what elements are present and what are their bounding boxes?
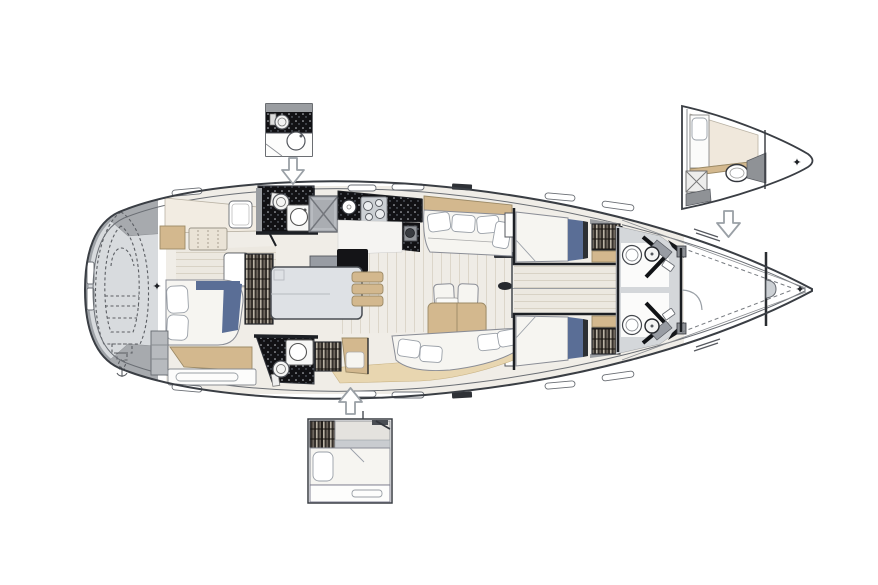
inset-head-option: [266, 104, 312, 184]
pillow: [313, 452, 333, 481]
berth: [516, 316, 568, 366]
engine-box: [271, 267, 362, 319]
arrow-down-icon: [717, 211, 740, 237]
dining-seat: [458, 284, 479, 306]
toilet-icon: [275, 115, 289, 129]
galley-sink-icon: [342, 200, 356, 214]
companionway-stairs: [309, 196, 338, 232]
toilet-icon: [623, 246, 642, 265]
pillow: [166, 285, 188, 313]
galley: [338, 191, 422, 254]
sink-icon: [290, 344, 307, 361]
wardrobe: [245, 254, 273, 324]
galley-appliance-icon: [406, 229, 415, 238]
pillow: [427, 212, 451, 233]
toilet-icon: [273, 361, 289, 377]
wardrobe: [315, 342, 341, 371]
owners-bed: [166, 280, 243, 345]
yacht-deck-plan: ✦: [0, 0, 878, 585]
sink-icon: [726, 165, 748, 182]
mast-foot-icon: [498, 282, 512, 290]
arrow-down-icon: [282, 158, 304, 184]
yacht-deck-plan-canvas: ✦: [0, 0, 878, 585]
sink-icon: [287, 132, 305, 150]
inset-bow-star-icon: ✦: [792, 156, 801, 169]
pillow: [397, 339, 421, 359]
inset-bow-cabin-option: ✦: [682, 106, 813, 237]
pillow: [419, 345, 442, 362]
pillow: [166, 314, 188, 340]
inset-bunk-cabin-option: [308, 388, 392, 503]
stove-icon: [361, 197, 387, 224]
berth: [516, 212, 568, 262]
locker: [160, 226, 185, 249]
steps: [151, 331, 168, 375]
toilet-icon: [623, 316, 642, 335]
stern-star-icon: ✦: [152, 280, 161, 293]
pillow: [451, 214, 475, 233]
nav-seat: [352, 272, 383, 306]
pillow: [692, 118, 707, 140]
main-hull: ✦: [84, 178, 812, 402]
